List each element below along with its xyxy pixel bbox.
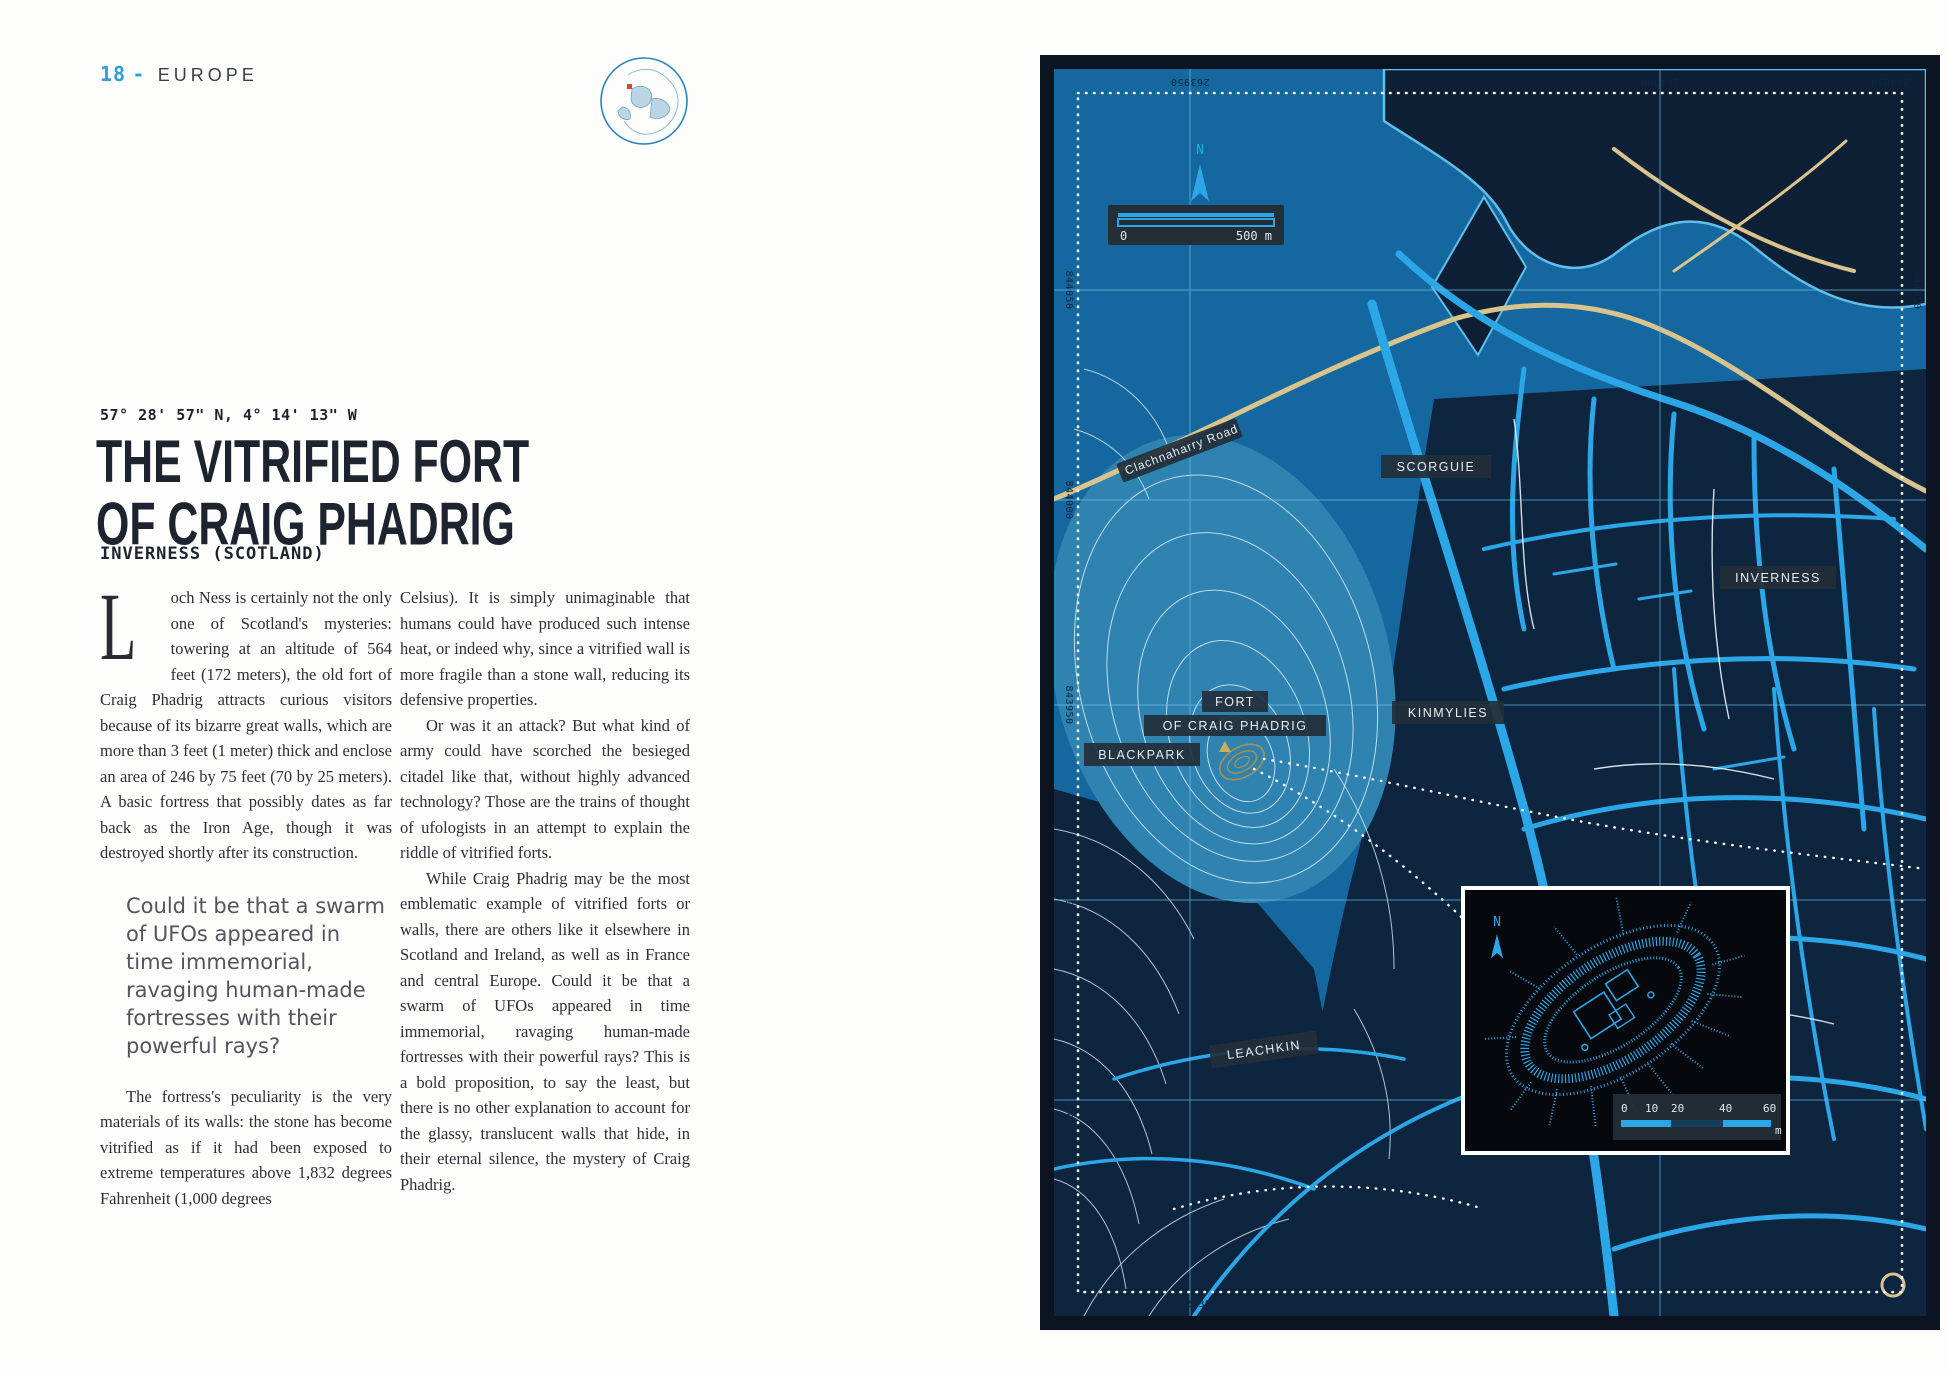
svg-text:264050: 264050 [1870, 1299, 1909, 1310]
svg-text:10: 10 [1645, 1102, 1658, 1115]
svg-text:60: 60 [1763, 1102, 1776, 1115]
svg-text:264000: 264000 [1660, 1299, 1699, 1310]
location-dot [627, 84, 632, 89]
svg-text:FORT: FORT [1215, 695, 1255, 709]
inset-scale-bar: 0 10 20 40 60 m [1613, 1094, 1782, 1140]
drop-cap: L [100, 589, 136, 665]
article-title-line1: THE VITRIFIED FORT [96, 430, 533, 493]
article-title: THE VITRIFIED FORT OF CRAIG PHADRIG [96, 430, 533, 555]
page-number: 18 [100, 62, 126, 86]
paragraph: Loch Ness is certainly not the only one … [100, 585, 392, 866]
section-title: EUROPE [158, 65, 258, 85]
body-column-1: Loch Ness is certainly not the only one … [100, 585, 392, 1211]
fort-plan-inset: N 0 10 20 40 60 m [1440, 848, 1788, 1173]
paragraph: The fortress's peculiarity is the very m… [100, 1084, 392, 1212]
geo-coordinates: 57° 28' 57" N, 4° 14' 13" W [100, 406, 357, 424]
svg-text:40: 40 [1719, 1102, 1732, 1115]
svg-text:844050: 844050 [1063, 270, 1074, 309]
svg-text:843950: 843950 [1911, 685, 1922, 724]
svg-text:BLACKPARK: BLACKPARK [1098, 748, 1186, 762]
badge-scorguie: SCORGUIE [1381, 455, 1491, 478]
paragraph: While Craig Phadrig may be the most embl… [400, 866, 690, 1198]
paragraph: Or was it an attack? But what kind of ar… [400, 713, 690, 866]
svg-text:843850: 843850 [1063, 1080, 1074, 1119]
body-column-2: Celsius). It is simply unimaginable that… [400, 585, 690, 1197]
svg-text:264000: 264000 [1640, 76, 1679, 87]
svg-text:0: 0 [1621, 1102, 1628, 1115]
svg-text:N: N [1493, 915, 1501, 930]
svg-text:m: m [1775, 1124, 1782, 1137]
badge-inverness: INVERNESS [1720, 566, 1836, 589]
north-arrow-icon: N [1191, 143, 1209, 201]
pull-quote: Could it be that a swarm of UFOs appeare… [126, 892, 392, 1060]
svg-text:OF CRAIG PHADRIG: OF CRAIG PHADRIG [1163, 719, 1308, 733]
svg-text:SCORGUIE: SCORGUIE [1397, 460, 1476, 474]
paragraph-text: och Ness is certainly not the only one o… [100, 588, 392, 862]
svg-text:INVERNESS: INVERNESS [1735, 571, 1821, 585]
paragraph: Celsius). It is simply unimaginable that… [400, 585, 690, 713]
inverness-map: 263950 264000 264050 263950 264000 26405… [1040, 55, 1940, 1330]
badge-kinmylies: KINMYLIES [1392, 701, 1504, 724]
svg-text:843900: 843900 [1063, 880, 1074, 919]
svg-text:844000: 844000 [1063, 480, 1074, 519]
svg-text:N: N [1196, 143, 1204, 158]
svg-text:263950: 263950 [1185, 1299, 1224, 1310]
book-spread: 18 - EUROPE 57° 28' 57" N, 4° 14' 13" W … [0, 0, 1946, 1374]
article-subtitle: INVERNESS (SCOTLAND) [100, 544, 325, 564]
svg-text:500 m: 500 m [1236, 229, 1272, 243]
map-scale-bar: 0 500 m [1108, 205, 1284, 245]
badge-blackpark: BLACKPARK [1084, 743, 1200, 766]
page-header: 18 - EUROPE [100, 62, 258, 87]
svg-text:844050: 844050 [1911, 270, 1922, 309]
svg-text:264050: 264050 [1870, 76, 1909, 87]
globe-locator-icon [598, 55, 690, 147]
svg-text:20: 20 [1671, 1102, 1684, 1115]
svg-text:0: 0 [1120, 229, 1127, 243]
svg-text:KINMYLIES: KINMYLIES [1408, 706, 1488, 720]
page-number-separator: - [132, 62, 145, 86]
svg-text:843950: 843950 [1063, 685, 1074, 724]
svg-text:263950: 263950 [1170, 76, 1209, 87]
